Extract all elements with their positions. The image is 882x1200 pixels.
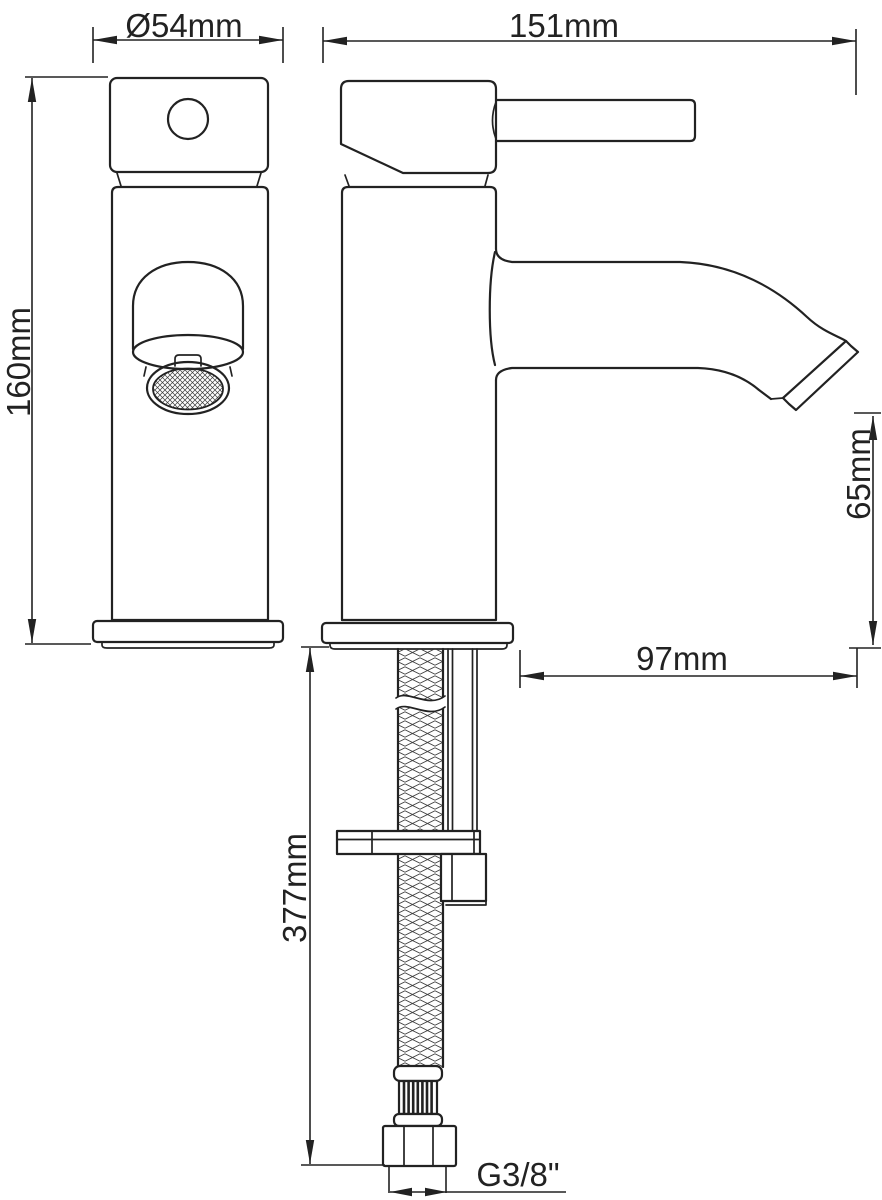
side-view: [322, 81, 858, 649]
label-spout-height: 65mm: [840, 428, 877, 520]
label-hose-length: 377mm: [276, 833, 313, 943]
fixing-rod: [448, 649, 477, 831]
supply-hose-assembly: [337, 649, 486, 1193]
drawing-canvas: Ø54mm 151mm 160mm 65mm 97mm 37: [0, 0, 882, 1200]
side-spout-tip: [783, 341, 858, 410]
label-total-length: 151mm: [509, 7, 619, 44]
hose-collar-lower: [394, 1114, 442, 1126]
front-aerator-mesh: [153, 369, 223, 410]
thread-extension-lines: [389, 1166, 446, 1193]
side-base-flange: [322, 623, 513, 643]
side-body-spout-blend: [490, 252, 495, 365]
label-thread-size: G3/8": [476, 1156, 559, 1193]
label-base-diameter: Ø54mm: [125, 7, 242, 44]
technical-drawing: Ø54mm 151mm 160mm 65mm 97mm 37: [0, 0, 882, 1200]
front-base-flange: [93, 621, 283, 642]
clamp-plate: [337, 831, 480, 854]
side-lever: [496, 100, 695, 141]
hose-collar-upper: [394, 1066, 442, 1081]
hose-hex-nut: [383, 1126, 456, 1166]
front-neck-ticks: [117, 173, 261, 186]
front-aerator-tab: [175, 355, 201, 366]
side-handle-head: [341, 81, 496, 173]
dimension-body-height: 160mm: [0, 77, 108, 644]
front-view: [93, 78, 283, 648]
label-spout-reach: 97mm: [636, 640, 728, 677]
front-handle-pin: [168, 99, 208, 139]
side-spout-top: [496, 249, 846, 341]
fixing-nut: [441, 854, 486, 901]
side-body: [342, 187, 496, 620]
hose-ribs: [404, 1082, 432, 1113]
label-body-height: 160mm: [0, 307, 37, 417]
side-spout-bottom: [496, 368, 771, 399]
dimension-spout-reach: 97mm: [520, 640, 857, 688]
side-body-lower-edge: [342, 380, 496, 620]
dimension-hose-length: 377mm: [276, 647, 385, 1165]
dimension-base-diameter: Ø54mm: [93, 7, 283, 63]
side-spout-tip-link: [771, 398, 783, 399]
side-neck-ticks: [345, 175, 488, 186]
dimension-spout-height: 65mm: [840, 413, 881, 688]
front-handle-cap: [110, 78, 268, 172]
front-spout-collar: [133, 335, 243, 369]
